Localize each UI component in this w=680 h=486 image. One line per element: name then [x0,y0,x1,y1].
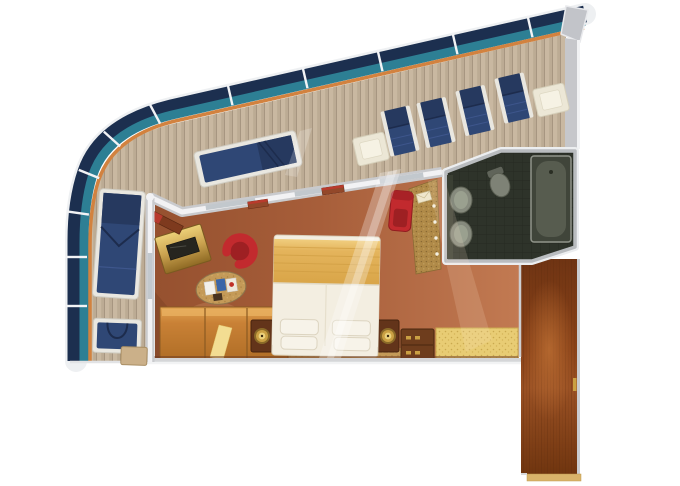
bathroom [446,151,575,261]
knob [406,336,411,340]
lamp-finial [387,335,389,337]
bathtub [531,156,571,242]
corridor-right-wall [577,259,580,474]
sun-lounger [92,189,145,300]
chair-canvas [97,322,138,349]
entry-corridor [521,259,581,481]
knob [406,351,411,355]
pillow [280,319,318,335]
vanity-light-dot [434,236,437,239]
sink-basin [454,191,468,209]
vanity-light-dot [433,220,436,223]
balcony-table-small [121,347,148,366]
wall-corner [146,193,154,201]
lounger-backrest [101,193,141,226]
knob [415,351,420,355]
magazine [204,281,216,295]
suite-floorplan [0,0,680,486]
pillow [281,336,317,350]
small-table-top [121,347,148,366]
tub-drain [549,170,553,174]
nightstand-right [377,320,399,352]
corridor-sheen [523,280,575,420]
vanity-chair-seat [393,208,409,227]
balcony-end-wall [565,38,577,149]
door-handle [573,378,577,391]
nightstand-left [251,320,273,352]
wardrobe-top-edge [162,309,286,316]
vanity-light-dot [435,252,438,255]
entry-door-threshold [527,474,581,481]
stanchion [65,256,87,258]
knob [415,336,420,340]
lamp-finial [261,335,263,337]
magazine [216,278,227,291]
balcony-end-wall-edge [577,40,580,149]
floorplan-canvas [0,0,680,486]
magazine [213,293,223,301]
stanchion [65,305,87,307]
